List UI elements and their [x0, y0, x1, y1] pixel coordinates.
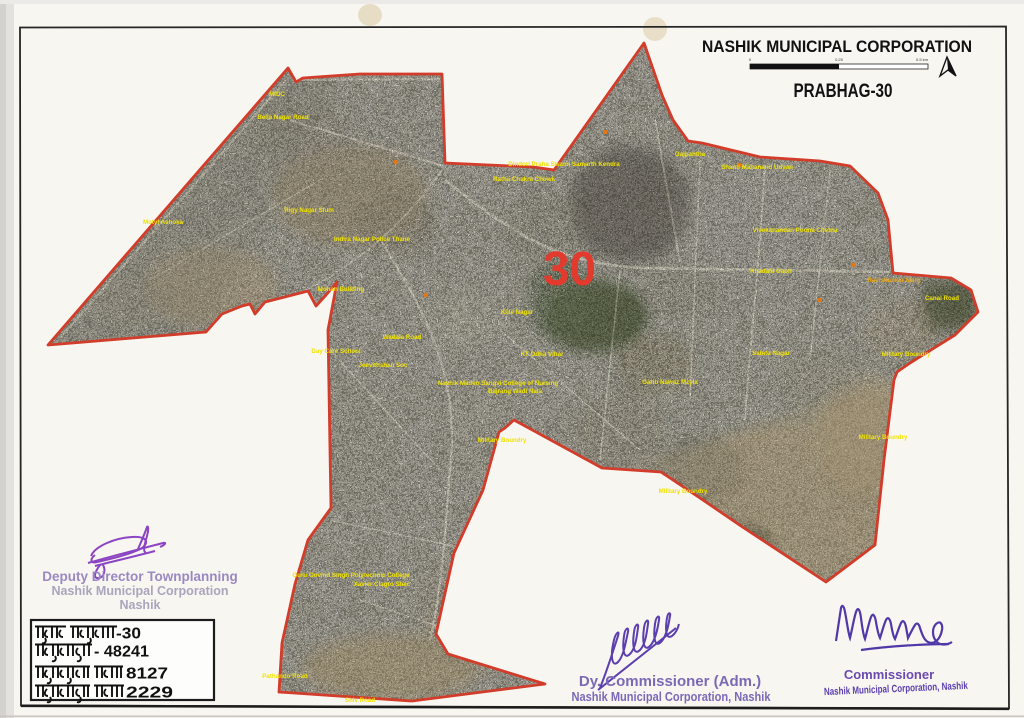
svg-text:Dindori Praha Swami Samarth Ke: Dindori Praha Swami Samarth Kendra	[508, 161, 620, 168]
svg-text:Shanti Mahanand Udyan: Shanti Mahanand Udyan	[721, 164, 793, 171]
svg-text:Kille Nagar: Kille Nagar	[501, 309, 534, 316]
svg-text:Jeevithshan Soc: Jeevithshan Soc	[359, 362, 408, 369]
svg-text:Xavier Clagro Shec: Xavier Clagro Shec	[354, 581, 411, 588]
svg-text:Khadala Gaon: Khadala Gaon	[750, 268, 792, 275]
svg-text:8127: 8127	[126, 666, 168, 683]
svg-text:Motyl Ashoka: Motyl Ashoka	[143, 219, 184, 226]
svg-text:PRABHAG-30: PRABHAG-30	[794, 81, 893, 102]
svg-text:Commissioner: Commissioner	[844, 667, 934, 682]
svg-text:Mohan Building: Mohan Building	[318, 286, 365, 293]
svg-text:Military Boundry: Military Boundry	[882, 351, 931, 358]
svg-text:Guru Govind Singh Polytechnic: Guru Govind Singh Polytechnic College	[292, 572, 410, 579]
svg-text:Bella Nagar Road: Bella Nagar Road	[257, 114, 308, 121]
svg-text:Canal Road: Canal Road	[925, 295, 959, 302]
svg-text:-30: -30	[116, 626, 141, 643]
svg-text:Day Care School: Day Care School	[311, 348, 360, 355]
svg-text:Nashik Madeo Sangvi College of: Nashik Madeo Sangvi College of Nursing	[438, 380, 559, 387]
svg-text:Rigy Nagar Slum: Rigy Nagar Slum	[284, 207, 334, 214]
svg-text:30: 30	[543, 242, 596, 296]
svg-text:Nashik: Nashik	[120, 598, 161, 612]
svg-text:Indira Nagar Police Thane: Indira Nagar Police Thane	[334, 236, 411, 243]
svg-text:Gajpantha: Gajpantha	[675, 151, 706, 158]
svg-text:0.25: 0.25	[835, 57, 844, 62]
svg-text:KT Odha Vihar: KT Odha Vihar	[521, 351, 564, 358]
svg-text:Military Boundry: Military Boundry	[859, 434, 908, 441]
svg-text:Shiv Road: Shiv Road	[345, 697, 375, 704]
svg-text:Nashik Municipal Corporation,: Nashik Municipal Corporation, Nashik	[572, 690, 771, 704]
svg-text:Vivekanandan Poona Chetna: Vivekanandan Poona Chetna	[753, 227, 838, 234]
svg-text:Garib Nawaz Mzyla: Garib Nawaz Mzyla	[642, 379, 698, 386]
svg-text:Sainta Nagar: Sainta Nagar	[752, 350, 790, 357]
svg-text:Wadala Road: Wadala Road	[383, 334, 422, 341]
svg-text:2229: 2229	[126, 685, 174, 702]
svg-text:Nashik Municipal Corporation: Nashik Municipal Corporation	[51, 584, 228, 598]
svg-text:Ravishankar Marg: Ravishankar Marg	[867, 277, 921, 284]
svg-text:0.5 km: 0.5 km	[916, 57, 929, 62]
svg-text:- 48241: - 48241	[94, 644, 149, 661]
svg-text:Bajrang Wadi Nala: Bajrang Wadi Nala	[488, 388, 543, 395]
svg-text:Military Boundry: Military Boundry	[478, 437, 527, 444]
svg-text:Pathando Road: Pathando Road	[262, 673, 308, 680]
svg-text:Military Boundry: Military Boundry	[659, 488, 708, 495]
svg-text:NASHIK MUNICIPAL CORPORATION: NASHIK MUNICIPAL CORPORATION	[702, 38, 972, 56]
svg-text:Dy. Commissioner (Adm.): Dy. Commissioner (Adm.)	[579, 673, 761, 690]
svg-text:Ratha Chakra Chowk: Ratha Chakra Chowk	[493, 176, 555, 183]
svg-text:MIDC: MIDC	[269, 91, 285, 98]
svg-text:Deputy Director Townplanning: Deputy Director Townplanning	[42, 569, 238, 584]
